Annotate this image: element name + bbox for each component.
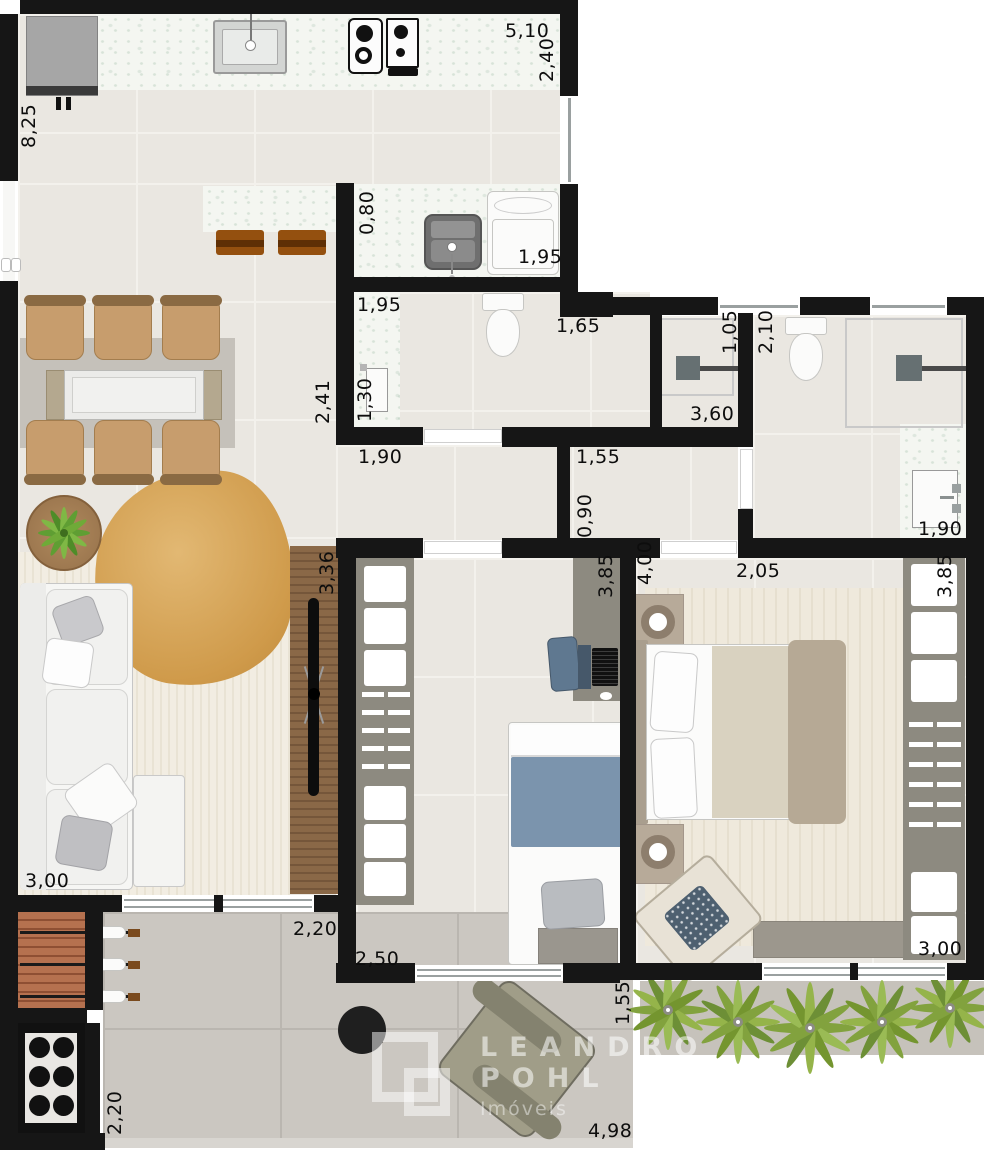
wall bbox=[0, 281, 18, 895]
grill-burner bbox=[53, 1095, 74, 1116]
wardrobe-shelf bbox=[364, 786, 406, 820]
dim-label: 3,00 bbox=[918, 938, 962, 960]
wardrobe-rail bbox=[937, 742, 961, 747]
dim-label: 1,65 bbox=[556, 315, 600, 337]
toilet-bowl bbox=[486, 309, 520, 357]
master-pillow bbox=[649, 651, 698, 734]
wall bbox=[0, 1133, 105, 1150]
fridge-handle bbox=[56, 97, 61, 110]
wall bbox=[738, 509, 753, 540]
dim-label: 3,00 bbox=[25, 870, 69, 892]
stool-band bbox=[278, 240, 326, 247]
dining-chair bbox=[26, 420, 84, 482]
wardrobe-rail bbox=[937, 802, 961, 807]
bathroom-door bbox=[424, 429, 502, 443]
dining-chair bbox=[162, 298, 220, 360]
wardrobe-rail bbox=[909, 782, 933, 787]
ensuite-faucet-knob bbox=[952, 484, 961, 493]
kitchen-counter bbox=[96, 14, 560, 90]
wall bbox=[85, 1023, 100, 1133]
dim-label: 1,05 bbox=[719, 310, 741, 354]
stove-burner bbox=[394, 25, 408, 39]
dim-label: 8,25 bbox=[18, 104, 40, 148]
wardrobe-shelf bbox=[364, 650, 406, 686]
dim-label: 2,20 bbox=[293, 918, 337, 940]
wardrobe-rail bbox=[388, 764, 410, 769]
wall bbox=[0, 14, 18, 181]
brand-watermark: LEANDRO POHL Imóveis bbox=[372, 1032, 709, 1125]
laundry-faucet bbox=[447, 242, 457, 252]
dim-label: 1,30 bbox=[354, 378, 376, 422]
wardrobe-shelf bbox=[911, 612, 957, 654]
wardrobe-rail bbox=[362, 692, 384, 697]
sofa-pillow bbox=[41, 637, 95, 689]
skewer-handle bbox=[128, 929, 140, 937]
dim-label: 2,41 bbox=[312, 380, 334, 424]
wardrobe-shelf bbox=[364, 862, 406, 896]
master-throw bbox=[788, 640, 846, 824]
washing-machine-lid bbox=[494, 197, 552, 214]
ensuite-door bbox=[740, 449, 753, 509]
stove-knobs bbox=[388, 68, 418, 76]
dining-chair bbox=[26, 298, 84, 360]
ensuite-faucet bbox=[940, 496, 954, 499]
wardrobe-rail bbox=[388, 728, 410, 733]
wardrobe-rail bbox=[362, 728, 384, 733]
stool-band bbox=[216, 240, 264, 247]
sofa-pillow bbox=[54, 814, 114, 872]
brand-tagline: Imóveis bbox=[480, 1094, 709, 1125]
dim-label: 0,90 bbox=[574, 494, 596, 538]
wall bbox=[557, 445, 570, 540]
lamp-icon bbox=[641, 835, 675, 869]
ensuite-toilet-bowl bbox=[789, 333, 823, 381]
dim-label: 3,85 bbox=[934, 554, 956, 598]
brand-logo-icon bbox=[372, 1032, 460, 1124]
dining-chair bbox=[94, 420, 152, 482]
master-sliding-door bbox=[762, 963, 947, 980]
lamp-icon bbox=[641, 605, 675, 639]
entry-door-mark bbox=[1, 258, 11, 272]
bed-foot-bench bbox=[538, 928, 618, 964]
wardrobe-shelf bbox=[364, 608, 406, 644]
dining-bench bbox=[46, 370, 66, 420]
sofa-chaise bbox=[133, 775, 185, 887]
wardrobe-rail bbox=[909, 762, 933, 767]
wardrobe-rail bbox=[937, 762, 961, 767]
shower-arm bbox=[700, 366, 740, 371]
wall bbox=[15, 1008, 87, 1023]
wall bbox=[800, 297, 870, 315]
dining-bench bbox=[202, 370, 222, 420]
bbq-grill-brick bbox=[17, 912, 85, 1008]
dim-label: 2,05 bbox=[736, 560, 780, 582]
wardrobe-rail bbox=[362, 764, 384, 769]
fridge-base bbox=[26, 86, 98, 95]
skewer-handle bbox=[128, 961, 140, 969]
dim-label: 1,55 bbox=[576, 446, 620, 468]
wall bbox=[336, 427, 423, 445]
wall bbox=[560, 292, 613, 317]
wardrobe-rail bbox=[937, 722, 961, 727]
grill-burner bbox=[53, 1037, 74, 1058]
ensuite-shower-head-icon bbox=[896, 355, 922, 381]
wardrobe-shelf bbox=[911, 872, 957, 912]
wall bbox=[336, 277, 568, 292]
wardrobe-rail bbox=[909, 822, 933, 827]
wardrobe-rail bbox=[909, 742, 933, 747]
master-blanket bbox=[712, 646, 792, 818]
wall bbox=[633, 963, 763, 980]
single-bed-pillow bbox=[540, 878, 605, 930]
dim-label: 2,10 bbox=[755, 310, 777, 354]
grill-burner bbox=[29, 1037, 50, 1058]
wardrobe-rail bbox=[937, 822, 961, 827]
wardrobe-rail bbox=[937, 782, 961, 787]
dim-label: 1,95 bbox=[357, 294, 401, 316]
shower-knob bbox=[360, 364, 367, 371]
desk-chair bbox=[547, 636, 582, 692]
wardrobe-rail bbox=[388, 710, 410, 715]
wall bbox=[620, 538, 636, 980]
wall bbox=[0, 912, 18, 1150]
dim-label: 2,20 bbox=[104, 1091, 126, 1135]
laptop-keyboard bbox=[592, 648, 618, 686]
dim-label: 3,60 bbox=[690, 403, 734, 425]
dim-label: 3,85 bbox=[595, 554, 617, 598]
grill-burner bbox=[29, 1066, 50, 1087]
kitchen-faucet-stem bbox=[250, 12, 252, 42]
dim-label: 1,55 bbox=[612, 981, 634, 1025]
wardrobe-rail bbox=[909, 722, 933, 727]
wall bbox=[0, 895, 122, 912]
terrace-edge bbox=[103, 1138, 633, 1148]
ensuite-faucet-knob bbox=[952, 504, 961, 513]
bedroom1-door bbox=[424, 541, 502, 554]
wardrobe-rail bbox=[388, 692, 410, 697]
wall bbox=[338, 538, 356, 983]
fridge bbox=[26, 16, 98, 96]
dim-label: 1,90 bbox=[358, 446, 402, 468]
wall bbox=[650, 310, 662, 427]
dim-label: 1,90 bbox=[918, 518, 962, 540]
skewer-handle bbox=[128, 993, 140, 1001]
dim-label: 4,00 bbox=[634, 541, 656, 585]
dining-table-top bbox=[72, 377, 196, 413]
master-pillow bbox=[650, 737, 698, 819]
wall bbox=[20, 0, 578, 14]
brand-name-line2: POHL bbox=[480, 1063, 709, 1094]
laptop-screen bbox=[578, 645, 591, 689]
dim-label: 0,80 bbox=[356, 191, 378, 235]
floor-plan: 5,10 2,40 8,25 0,80 1,95 1,95 1,65 1,30 … bbox=[0, 0, 984, 1150]
wardrobe-rail bbox=[388, 746, 410, 751]
stove-burner bbox=[396, 48, 405, 57]
wardrobe-rail bbox=[362, 710, 384, 715]
single-bed-sheet bbox=[511, 725, 622, 757]
living-sliding-door bbox=[122, 895, 314, 912]
grill-burner bbox=[29, 1095, 50, 1116]
entry-door-mark bbox=[11, 258, 21, 272]
kitchen-window bbox=[560, 96, 578, 184]
kitchen-island bbox=[203, 186, 345, 232]
brand-name-line1: LEANDRO bbox=[480, 1032, 709, 1063]
bedroom1-window bbox=[415, 965, 563, 981]
wall bbox=[502, 427, 753, 447]
wall bbox=[336, 183, 354, 445]
wall bbox=[85, 912, 103, 1010]
wardrobe-shelf bbox=[364, 824, 406, 858]
wall bbox=[560, 14, 578, 96]
stove-burner bbox=[356, 25, 373, 42]
single-bed-blanket bbox=[511, 757, 622, 847]
laundry-sink-top bbox=[431, 221, 475, 238]
grill-burner bbox=[53, 1066, 74, 1087]
shower-head-icon bbox=[676, 356, 700, 380]
mouse bbox=[600, 692, 612, 700]
laundry-faucet-stem bbox=[451, 254, 453, 274]
dining-chair bbox=[162, 420, 220, 482]
wardrobe-shelf bbox=[364, 566, 406, 602]
kitchen-faucet bbox=[245, 40, 256, 51]
dim-label: 2,40 bbox=[536, 38, 558, 82]
master-door bbox=[661, 541, 737, 554]
stove-burner-ring bbox=[355, 47, 372, 64]
wardrobe-rail bbox=[909, 802, 933, 807]
tv-center-dot bbox=[308, 688, 320, 700]
dim-label: 1,95 bbox=[518, 246, 562, 268]
wall bbox=[947, 297, 984, 315]
dim-label: 3,36 bbox=[316, 551, 338, 595]
dining-chair bbox=[94, 298, 152, 360]
ensuite-shower-arm bbox=[922, 366, 966, 371]
dim-label: 2,50 bbox=[355, 948, 399, 970]
wall bbox=[943, 963, 984, 980]
fridge-handle bbox=[66, 97, 71, 110]
plant-icon bbox=[34, 503, 94, 563]
ensuite-window bbox=[870, 299, 947, 313]
wardrobe-shelf bbox=[911, 660, 957, 702]
wall bbox=[966, 315, 984, 980]
wardrobe-rail bbox=[362, 746, 384, 751]
sofa-backrest bbox=[20, 583, 46, 890]
